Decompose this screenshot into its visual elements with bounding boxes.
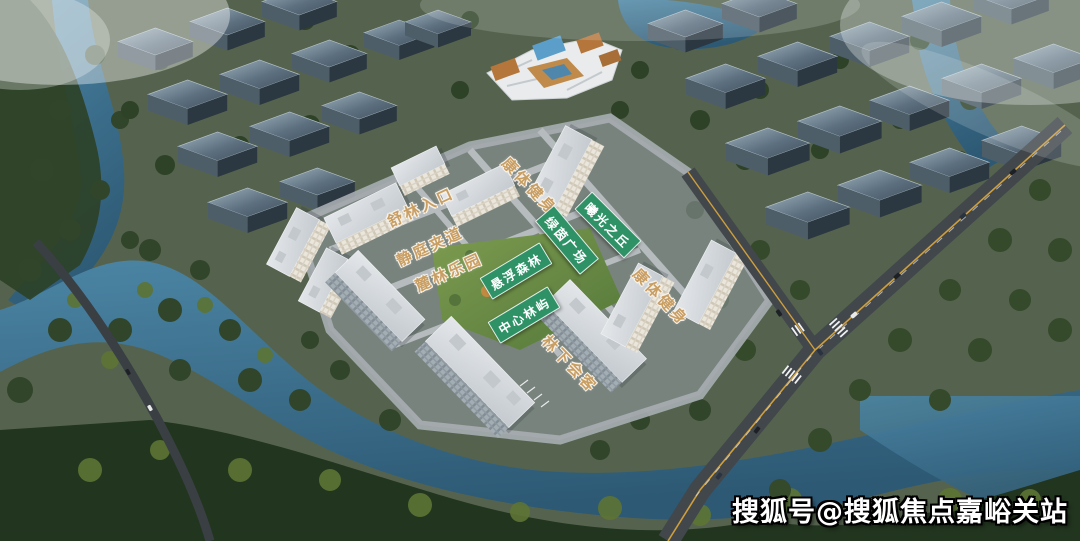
watermark: 搜狐号@搜狐焦点嘉峪关站 <box>732 490 1068 529</box>
rendered-scene <box>0 0 1080 541</box>
aerial-render-screenshot: 舒林入口静庭夹道麓林乐园悬浮森林中心林屿康体健身曦光之丘绿茵广场康体健身林下会客… <box>0 0 1080 541</box>
